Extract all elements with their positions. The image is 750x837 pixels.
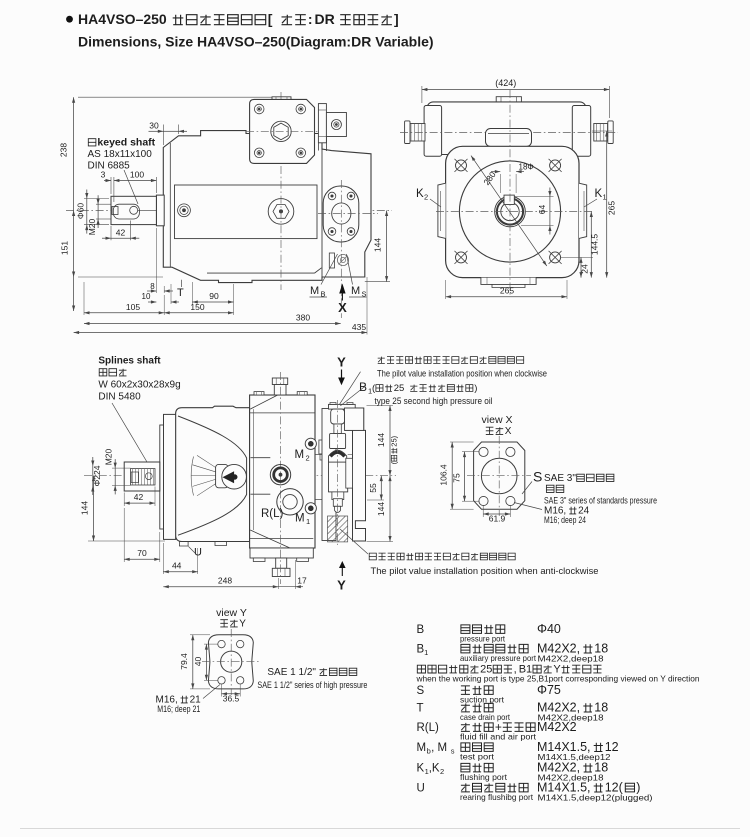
svg-text:M42X2,deep18: M42X2,deep18 [538, 654, 604, 664]
svg-text:Φ60: Φ60 [76, 203, 86, 220]
svg-text:U: U [194, 547, 202, 559]
svg-text:M20: M20 [104, 448, 114, 465]
svg-text:SAE 1 1/2": SAE 1 1/2" [267, 667, 316, 678]
svg-text:Splines shaft: Splines shaft [98, 356, 161, 367]
svg-text:HA4VSO–250: HA4VSO–250 [78, 11, 167, 27]
svg-text:Y: Y [337, 578, 346, 593]
svg-text:M: M [417, 742, 427, 754]
svg-text:8: 8 [150, 282, 155, 291]
svg-text:2: 2 [306, 454, 310, 463]
svg-text:144: 144 [376, 433, 386, 447]
svg-text:M: M [295, 513, 305, 525]
svg-text::: : [308, 11, 313, 27]
svg-text:1: 1 [603, 193, 607, 202]
svg-text:90: 90 [209, 291, 219, 301]
svg-text:265: 265 [500, 286, 514, 296]
svg-text:The pilot value installation p: The pilot value installation position wh… [371, 566, 599, 577]
svg-text:K: K [417, 763, 425, 775]
svg-text:The pilot value installation p: The pilot value installation position wh… [377, 369, 547, 380]
svg-text:25: 25 [394, 383, 405, 394]
svg-text:T: T [417, 703, 424, 715]
svg-text:Dimensions, Size HA4VSO–250(Di: Dimensions, Size HA4VSO–250(Diagram:DR V… [78, 34, 434, 50]
svg-text:M: M [295, 449, 305, 461]
svg-text:X: X [338, 300, 347, 315]
svg-text:fluid fill and air port: fluid fill and air port [460, 732, 537, 742]
svg-text:30: 30 [149, 121, 159, 131]
svg-text:U: U [417, 783, 425, 795]
svg-text:151: 151 [60, 241, 70, 255]
svg-text:M: M [310, 285, 319, 297]
svg-text:Y: Y [239, 619, 246, 630]
svg-text:265: 265 [607, 201, 617, 215]
svg-text:144: 144 [376, 502, 386, 516]
svg-text:44: 44 [172, 561, 182, 571]
svg-text:flushing port: flushing port [460, 772, 508, 782]
svg-text:pressure port: pressure port [460, 634, 506, 644]
svg-text:S: S [417, 685, 425, 697]
svg-text:61.9: 61.9 [489, 514, 506, 524]
svg-text:[: [ [268, 11, 273, 27]
svg-text:M14X1.5,deep12(plugged): M14X1.5,deep12(plugged) [538, 793, 653, 803]
svg-text:M: M [351, 285, 360, 297]
svg-text:T: T [177, 287, 184, 299]
svg-text:view X: view X [482, 414, 513, 426]
svg-text:1: 1 [306, 517, 310, 526]
svg-text:3: 3 [101, 170, 106, 180]
svg-text:rearing flushibg port: rearing flushibg port [460, 792, 534, 802]
svg-text:B: B [417, 624, 425, 636]
svg-text:B: B [359, 380, 367, 394]
svg-text:SAE 1 1/2" series of high pr: SAE 1 1/2" series of high pressure [257, 680, 367, 690]
svg-text:24: 24 [580, 264, 590, 274]
svg-text:M20: M20 [87, 218, 97, 235]
svg-text:X: X [505, 426, 512, 437]
svg-text:M16; deep 21: M16; deep 21 [157, 704, 200, 714]
svg-text:40: 40 [193, 657, 203, 667]
svg-text:Y: Y [337, 355, 346, 370]
svg-text:,K: ,K [429, 763, 440, 775]
svg-text:(424): (424) [495, 78, 516, 88]
svg-text:10: 10 [142, 292, 151, 301]
svg-text:case drain port: case drain port [460, 712, 511, 722]
svg-text:AS 18x11x100: AS 18x11x100 [88, 149, 153, 160]
svg-text:suction port: suction port [460, 695, 505, 705]
svg-text:view Y: view Y [216, 607, 247, 619]
svg-text:106.4: 106.4 [439, 464, 449, 486]
svg-text:144.5: 144.5 [590, 234, 600, 256]
svg-text:17: 17 [297, 576, 307, 586]
svg-text:keyed shaft: keyed shaft [97, 137, 155, 149]
svg-text:SAE 3": SAE 3" [544, 473, 576, 484]
svg-text:79.4: 79.4 [179, 653, 189, 670]
svg-text:36.5: 36.5 [223, 694, 240, 704]
svg-text:Φ75: Φ75 [537, 683, 561, 697]
svg-text:380: 380 [296, 313, 310, 323]
svg-text:100: 100 [130, 170, 144, 180]
svg-text:435: 435 [352, 322, 366, 332]
svg-text:Φ40: Φ40 [537, 622, 561, 636]
svg-text:25): 25) [390, 435, 399, 446]
svg-text:, M: , M [431, 742, 447, 754]
svg-text:DR: DR [315, 11, 335, 27]
svg-text:auxiliary pressure port: auxiliary pressure port [460, 653, 537, 663]
svg-text:S: S [533, 469, 542, 485]
svg-text:SAE 3" series of standards pr: SAE 3" series of standards pressure [544, 496, 657, 506]
svg-text:K: K [595, 188, 603, 200]
svg-text:75: 75 [452, 473, 462, 483]
svg-text:]: ] [394, 11, 399, 27]
svg-text:64: 64 [537, 205, 547, 215]
svg-text:238: 238 [59, 143, 69, 157]
svg-text:18Φ: 18Φ [519, 163, 534, 172]
svg-text:70: 70 [137, 548, 147, 558]
svg-text:M42X2: M42X2 [537, 720, 577, 734]
svg-text:type 25 second high pressure o: type 25 second high pressure oil [375, 396, 493, 407]
svg-text:W 60x2x30x28x9g: W 60x2x30x28x9g [98, 380, 180, 391]
svg-text:42: 42 [134, 492, 144, 502]
svg-text:K: K [416, 188, 424, 200]
svg-text:DIN 5480: DIN 5480 [98, 392, 141, 403]
svg-text:144: 144 [373, 238, 383, 252]
svg-text:R(L): R(L) [261, 508, 284, 520]
svg-text:105: 105 [126, 302, 140, 312]
svg-text:150: 150 [190, 302, 204, 312]
svg-text:42: 42 [116, 228, 126, 238]
svg-text:s: s [451, 747, 455, 756]
svg-text:when the working port is type: when the working port is type 25,B1port … [416, 674, 700, 684]
svg-text:248: 248 [218, 576, 232, 586]
svg-text:R(L): R(L) [417, 722, 440, 734]
svg-text:55: 55 [368, 483, 378, 493]
svg-text:DIN 6885: DIN 6885 [88, 161, 131, 172]
svg-text:144: 144 [80, 501, 90, 515]
svg-text:2: 2 [424, 193, 428, 202]
svg-text:M16; deep 24: M16; deep 24 [544, 515, 586, 525]
svg-text:test port: test port [460, 752, 495, 762]
svg-text:): ) [474, 383, 477, 394]
svg-text:1: 1 [424, 648, 428, 657]
svg-text:2: 2 [440, 767, 444, 776]
